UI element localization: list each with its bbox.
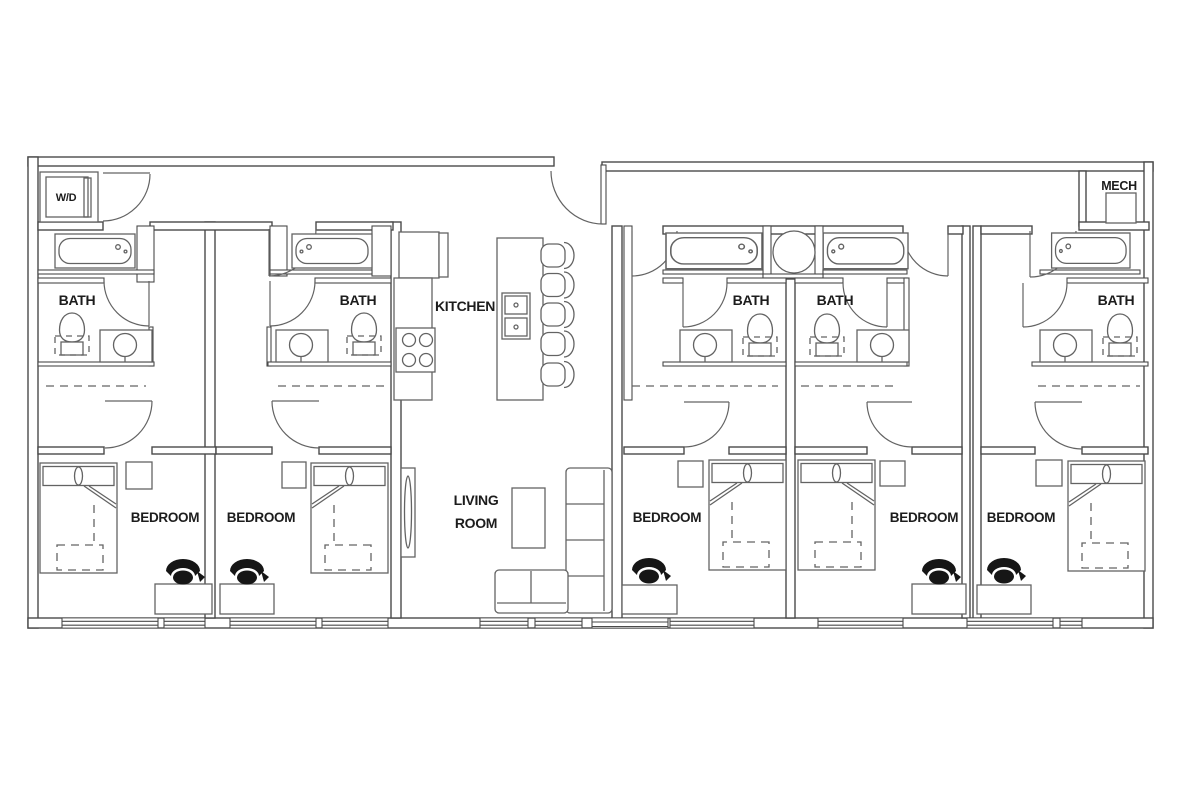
bedroom-5-label: BEDROOM: [987, 510, 1055, 525]
kitchen: KITCHEN: [394, 232, 574, 400]
desk-icon: [155, 584, 212, 614]
living-room: LIVING ROOM: [401, 468, 612, 613]
bed-icon: [709, 460, 786, 570]
bed-icon: [40, 463, 117, 573]
living-room-label-line2: ROOM: [455, 515, 497, 531]
bath-4-label: BATH: [817, 292, 854, 308]
bath-3-label: BATH: [733, 292, 770, 308]
toilet-icon: [347, 313, 381, 355]
bar-stool-icon: [541, 272, 574, 298]
bar-stool-icon: [541, 243, 574, 269]
tv-console-icon: [401, 468, 415, 557]
desk-icon: [977, 585, 1031, 614]
bathtub-icon: [55, 234, 135, 268]
island-sink-icon: [502, 293, 530, 339]
bath-1-label: BATH: [59, 292, 96, 308]
bathtub-icon: [823, 233, 908, 269]
bath-2-label: BATH: [340, 292, 377, 308]
bedroom-2-label: BEDROOM: [227, 510, 295, 525]
entry-door-leaf: [601, 165, 606, 224]
bar-stool-icon: [541, 362, 574, 388]
desk-chair-icon: [166, 559, 205, 585]
sink-icon: [680, 330, 732, 362]
bedroom-1-label: BEDROOM: [131, 510, 199, 525]
bathtub-icon: [1052, 233, 1130, 268]
bath-2: BATH: [276, 234, 381, 362]
nightstand-icon: [880, 461, 905, 486]
bedroom-3: BEDROOM: [622, 460, 786, 614]
bedroom-4-label: BEDROOM: [890, 510, 958, 525]
bedroom-1: BEDROOM: [40, 462, 212, 614]
nightstand-icon: [126, 462, 152, 489]
sink-icon: [276, 330, 328, 362]
bedroom-4: BEDROOM: [798, 460, 966, 614]
toilet-icon: [743, 314, 777, 356]
toilet-icon: [810, 314, 844, 356]
bedroom-2: BEDROOM: [220, 462, 388, 614]
refrigerator-icon: [399, 232, 439, 278]
floor-plan-page: W/D MECH BATH BATH BATH BATH BATH: [0, 0, 1187, 800]
desk-chair-icon: [632, 558, 671, 584]
sink-icon: [1040, 330, 1092, 362]
bedroom-3-label: BEDROOM: [633, 510, 701, 525]
bath-5: BATH: [1040, 233, 1137, 362]
desk-icon: [912, 584, 966, 614]
desk-icon: [220, 584, 274, 614]
bed-icon: [1068, 461, 1145, 571]
laundry-closet: W/D: [40, 172, 98, 222]
entry-door-swing-icon: [551, 171, 603, 224]
floor-plan: W/D MECH BATH BATH BATH BATH BATH: [0, 0, 1187, 800]
desk-chair-icon: [230, 559, 269, 585]
mech-unit-icon: [1106, 193, 1136, 223]
water-heater-icon: [773, 231, 815, 273]
doors: [103, 165, 1082, 449]
bathtub-icon: [666, 233, 762, 269]
bath-5-label: BATH: [1098, 292, 1135, 308]
kitchen-label: KITCHEN: [435, 298, 495, 314]
bar-stool-icon: [541, 331, 574, 357]
bath-4: BATH: [810, 233, 909, 362]
mechanical-room: MECH: [1101, 179, 1137, 223]
nightstand-icon: [678, 461, 703, 487]
laundry-label: W/D: [56, 192, 77, 204]
bedroom-5: BEDROOM: [977, 460, 1145, 614]
desk-chair-icon: [922, 559, 961, 585]
desk-chair-icon: [987, 558, 1026, 584]
sink-icon: [100, 330, 152, 362]
toilet-icon: [55, 313, 89, 355]
toilet-icon: [1103, 314, 1137, 356]
bed-icon: [311, 463, 388, 573]
bed-icon: [798, 460, 875, 570]
mech-label: MECH: [1101, 179, 1137, 193]
living-room-label-line1: LIVING: [454, 492, 499, 508]
nightstand-icon: [1036, 460, 1062, 486]
coffee-table-icon: [512, 488, 545, 548]
nightstand-icon: [282, 462, 306, 488]
desk-icon: [622, 585, 677, 614]
bathtub-icon: [292, 234, 372, 268]
sink-icon: [857, 330, 909, 362]
bar-stool-icon: [541, 302, 574, 328]
